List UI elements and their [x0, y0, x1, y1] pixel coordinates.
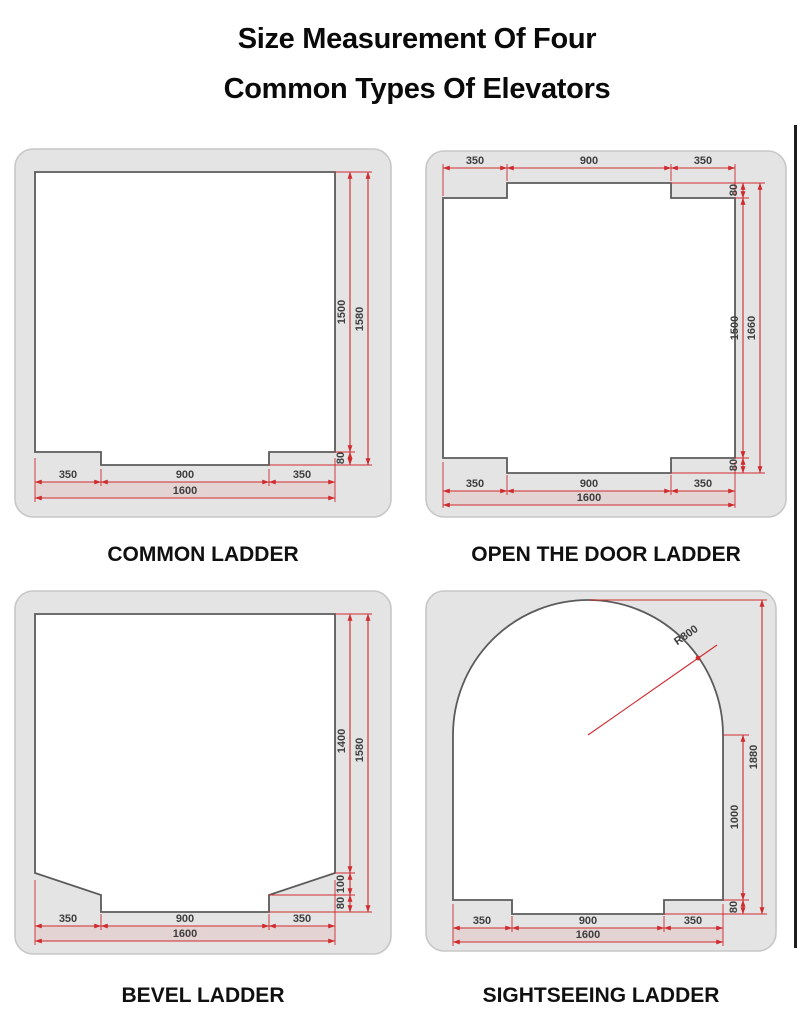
caption-common-ladder: COMMON LADDER: [14, 543, 392, 567]
common-ladder-diagram: 350 900 350 1600 1500 1580 80: [14, 148, 392, 518]
dim-label-bottom-right: 350: [293, 913, 311, 925]
page: Size Measurement Of Four Common Types Of…: [0, 0, 800, 1029]
dim-label-bottom-left: 350: [466, 478, 484, 490]
dim-label-bottom-door-depth: 80: [728, 459, 740, 471]
dim-label-door-depth: 80: [728, 901, 740, 913]
caption-bevel-ladder: BEVEL LADDER: [14, 984, 392, 1008]
dim-label-top-right: 350: [694, 155, 712, 167]
dim-label-top-center: 900: [580, 155, 598, 167]
dim-label-bottom-right: 350: [694, 478, 712, 490]
dim-label-side-total: 1580: [354, 307, 366, 331]
title-line-1: Size Measurement Of Four: [34, 14, 800, 64]
page-title: Size Measurement Of Four Common Types Of…: [0, 14, 800, 114]
car-outline: [453, 600, 723, 914]
dim-label-bottom-total: 1600: [173, 485, 197, 497]
dim-label-bottom-left: 350: [473, 915, 491, 927]
bevel-ladder-diagram: 350 900 350 1600 1400 1580 100 80: [14, 590, 392, 955]
dim-label-bottom-right: 350: [293, 469, 311, 481]
dim-label-top-door-depth: 80: [728, 184, 740, 196]
dim-label-side-inner: 1400: [336, 729, 348, 753]
dim-label-side-total: 1580: [354, 738, 366, 762]
sightseeing-ladder-diagram: R800 1880 1000 80 350 900 350 1600: [425, 590, 777, 952]
caption-open-door-ladder: OPEN THE DOOR LADDER: [425, 543, 787, 567]
cropped-image-edge: [794, 125, 797, 948]
car-outline: [35, 172, 335, 465]
dim-label-bottom-total: 1600: [576, 929, 600, 941]
dim-label-side-total: 1660: [746, 316, 758, 340]
dim-label-bottom-total: 1600: [173, 928, 197, 940]
dim-label-side-wall: 1000: [729, 805, 741, 829]
dim-label-bevel-depth: 100: [335, 875, 347, 893]
dim-label-bottom-center: 900: [176, 913, 194, 925]
car-outline: [35, 614, 335, 912]
dim-label-side-total: 1880: [748, 745, 760, 769]
dim-label-bottom-total: 1600: [577, 492, 601, 504]
dim-label-bottom-left: 350: [59, 913, 77, 925]
caption-sightseeing-ladder: SIGHTSEEING LADDER: [425, 984, 777, 1008]
dim-label-door-depth: 80: [335, 452, 347, 464]
dim-label-bottom-left: 350: [59, 469, 77, 481]
dim-label-side-inner: 1500: [336, 300, 348, 324]
dim-label-bottom-center: 900: [580, 478, 598, 490]
dim-label-door-depth: 80: [335, 897, 347, 909]
car-outline: [443, 183, 735, 473]
title-line-2: Common Types Of Elevators: [34, 64, 800, 114]
open-door-ladder-diagram: 350 900 350 80 1500 1660 80 350 900 350 …: [425, 150, 787, 518]
dim-label-bottom-center: 900: [176, 469, 194, 481]
dim-label-bottom-right: 350: [684, 915, 702, 927]
dim-label-bottom-center: 900: [579, 915, 597, 927]
radius-arc-marker: [696, 656, 701, 661]
dim-label-top-left: 350: [466, 155, 484, 167]
dim-label-side-inner: 1500: [729, 316, 741, 340]
